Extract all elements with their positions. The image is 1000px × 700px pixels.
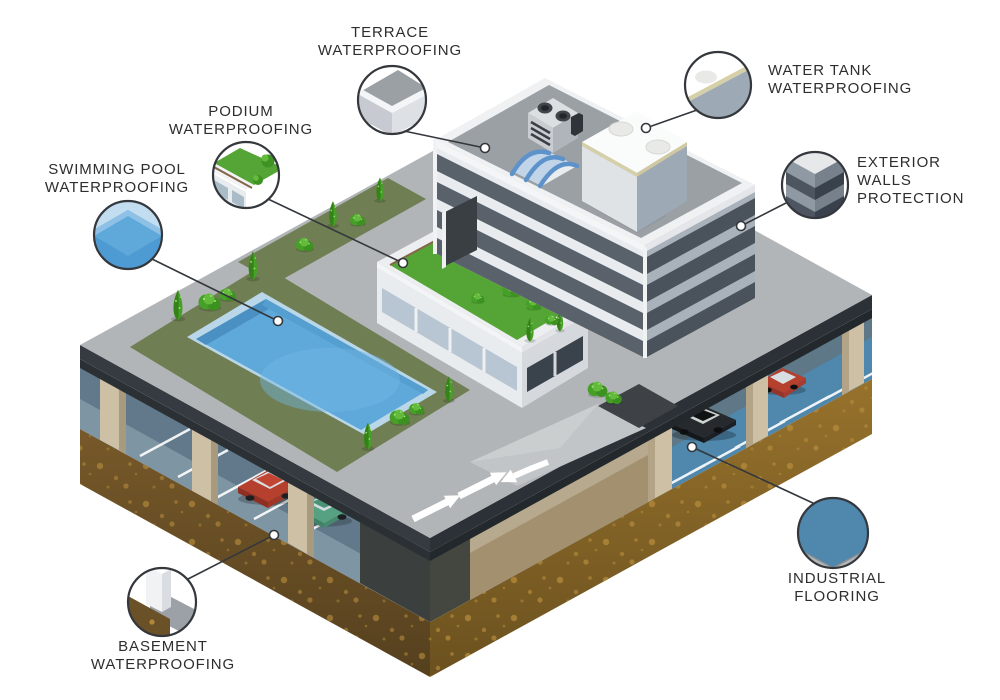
exterior-walls-protection-label: EXTERIOR WALLS PROTECTION — [857, 154, 964, 208]
water-tank-callout-circle — [685, 52, 752, 154]
basement-callout-circle — [128, 566, 196, 640]
industrial-anchor-dot — [688, 443, 697, 452]
pool-anchor-dot — [274, 317, 283, 326]
exterior-walls-callout-circle — [782, 142, 848, 224]
podium-callout-circle — [206, 142, 284, 236]
swimming-pool-callout-circle — [90, 196, 166, 269]
water-tank-leader-line — [646, 110, 697, 128]
water-tank-waterproofing-label: WATER TANK WATERPROOFING — [768, 62, 912, 98]
terrace-callout-circle — [356, 66, 430, 136]
industrial-flooring-callout-circle — [796, 498, 870, 580]
waterproofing-diagram: TERRACE WATERPROOFING WATER TANK WATERPR… — [0, 0, 1000, 700]
water-tank-anchor-dot — [642, 124, 651, 133]
exterior-anchor-dot — [737, 222, 746, 231]
industrial-flooring-label: INDUSTRIAL FLOORING — [788, 570, 886, 606]
terrace-anchor-dot — [481, 144, 490, 153]
basement-waterproofing-label: BASEMENT WATERPROOFING — [91, 638, 235, 674]
swimming-pool-waterproofing-label: SWIMMING POOL WATERPROOFING — [45, 161, 189, 197]
basement-anchor-dot — [270, 531, 279, 540]
podium-anchor-dot — [399, 259, 408, 268]
podium-waterproofing-label: PODIUM WATERPROOFING — [169, 103, 313, 139]
terrace-waterproofing-label: TERRACE WATERPROOFING — [318, 24, 462, 60]
